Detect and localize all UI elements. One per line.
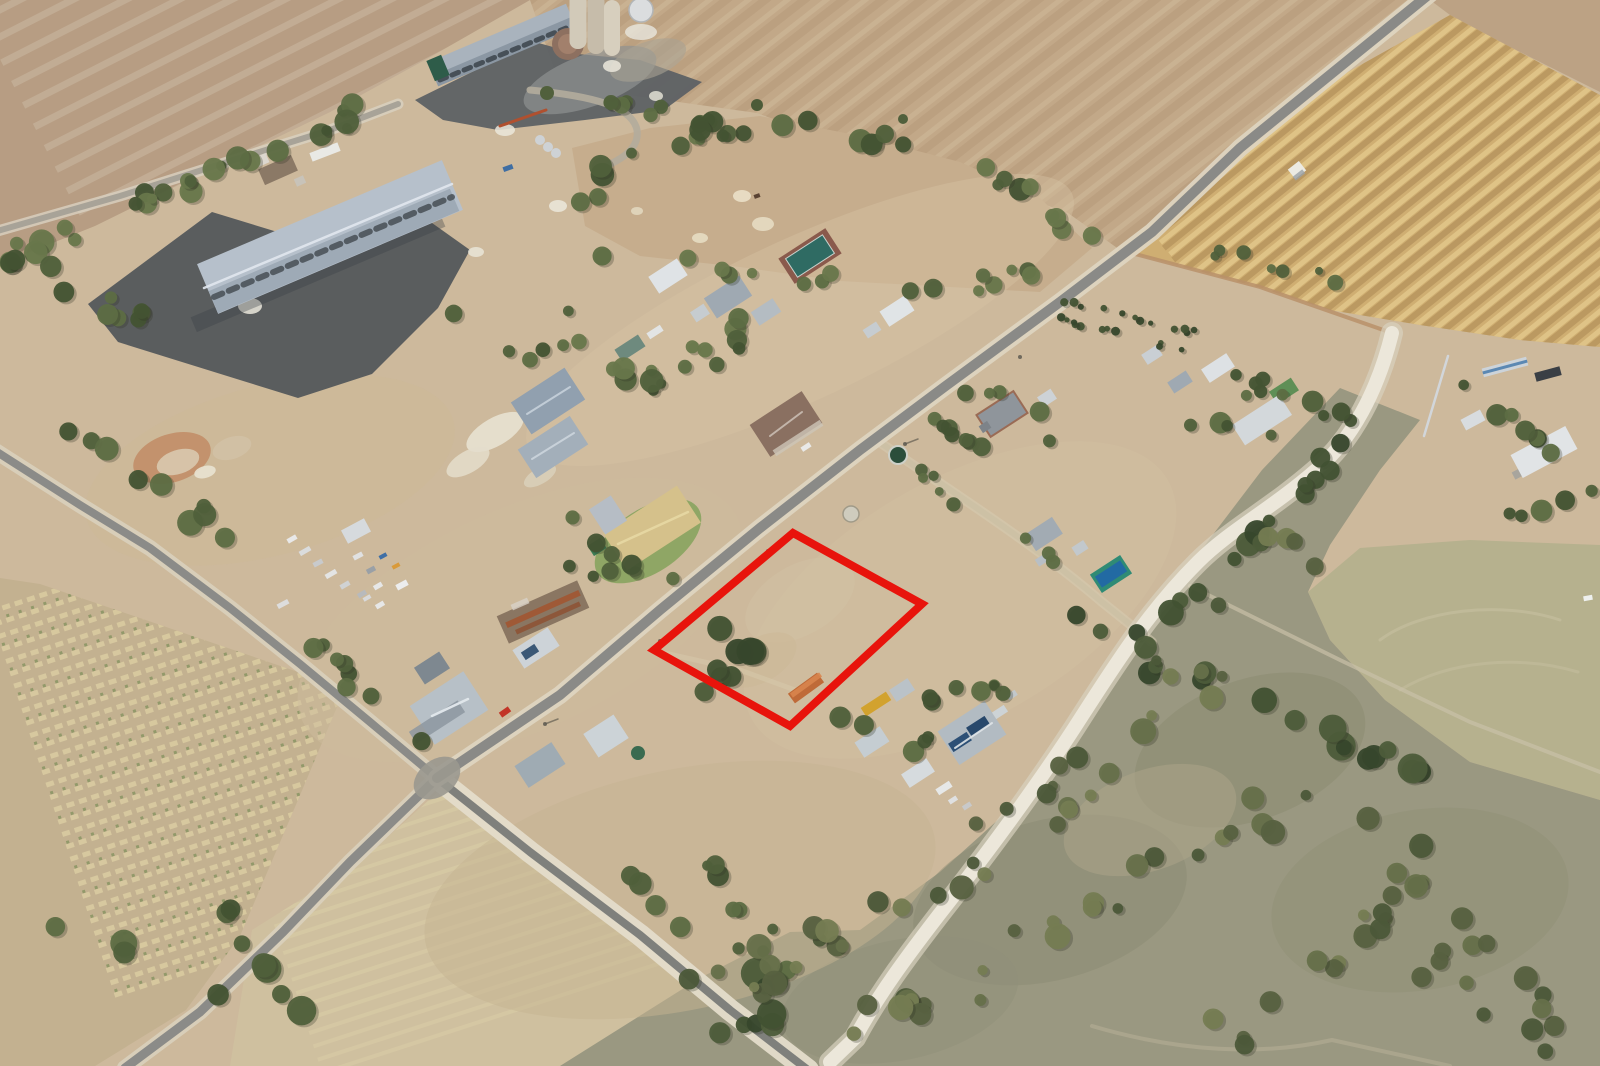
tree	[1179, 347, 1185, 353]
tree	[303, 638, 323, 658]
tree	[613, 357, 635, 379]
tree	[1302, 391, 1324, 413]
tree	[40, 256, 61, 277]
tree	[1476, 1007, 1490, 1021]
tree	[1112, 903, 1123, 914]
concrete-silo	[570, 0, 587, 49]
tree	[1227, 552, 1241, 566]
tree	[996, 171, 1012, 187]
tree	[1267, 264, 1276, 273]
tree	[1008, 924, 1021, 937]
tree	[1301, 790, 1312, 801]
tree	[1223, 825, 1238, 840]
concrete-silo	[604, 0, 620, 56]
tree	[697, 342, 712, 357]
tree	[1409, 834, 1433, 858]
tree	[725, 902, 741, 918]
tree	[1060, 800, 1078, 818]
aerial-photo-stage	[0, 0, 1600, 1066]
tree	[1064, 317, 1069, 322]
tree	[714, 262, 729, 277]
tree	[643, 108, 657, 122]
tree	[105, 291, 117, 303]
tree	[1383, 886, 1402, 905]
tree	[113, 941, 135, 963]
tree	[1037, 784, 1057, 804]
tree	[709, 1022, 730, 1043]
tree	[412, 732, 430, 750]
tree	[1586, 485, 1598, 497]
tree	[185, 175, 197, 187]
tree	[798, 111, 818, 131]
water-tower-tank	[889, 446, 907, 464]
tree	[1020, 533, 1031, 544]
tree	[1254, 385, 1267, 398]
tree	[971, 681, 991, 701]
tree	[1260, 991, 1281, 1012]
tree	[1046, 555, 1060, 569]
tree	[969, 816, 983, 830]
tree	[876, 125, 894, 143]
tree	[1214, 245, 1226, 257]
tree	[679, 250, 696, 267]
tree	[267, 140, 289, 162]
tree	[571, 192, 590, 211]
tree	[671, 137, 689, 155]
silo-ground-white	[625, 24, 657, 40]
tree	[1531, 500, 1553, 522]
tree	[995, 686, 1010, 701]
tree	[1430, 952, 1448, 970]
lone-tree	[751, 99, 763, 111]
tree	[1000, 802, 1014, 816]
tree	[1104, 326, 1110, 332]
tree	[957, 385, 974, 402]
tree	[733, 342, 746, 355]
tree	[95, 437, 119, 461]
tree	[1356, 807, 1379, 830]
tree	[1370, 919, 1391, 940]
sand-patch	[752, 217, 774, 231]
tree	[666, 572, 679, 585]
tree	[503, 345, 515, 357]
tree	[1537, 1043, 1553, 1059]
tree	[1327, 275, 1343, 291]
tree	[203, 158, 226, 181]
tree	[946, 497, 960, 511]
tree	[1130, 718, 1156, 744]
tree	[1379, 741, 1397, 759]
tree	[854, 715, 874, 735]
tree	[1505, 408, 1519, 422]
tree	[1358, 909, 1369, 920]
tree	[1100, 305, 1107, 312]
tree	[707, 659, 727, 679]
tree	[601, 562, 618, 579]
tree	[1331, 434, 1350, 453]
tree	[221, 899, 241, 919]
tree	[150, 473, 173, 496]
sand-patch	[631, 207, 643, 215]
tree	[1043, 434, 1056, 447]
limestone-patch	[649, 91, 663, 101]
tree	[1230, 369, 1242, 381]
tree	[1515, 509, 1528, 522]
sand-patch	[692, 233, 708, 243]
tree	[1006, 265, 1017, 276]
tree	[334, 109, 359, 134]
tree	[888, 995, 913, 1020]
tree	[1258, 527, 1277, 546]
tree	[1045, 923, 1071, 949]
tree	[1263, 515, 1275, 527]
tree	[234, 935, 251, 952]
power-pole	[903, 442, 907, 446]
tree	[1126, 854, 1149, 877]
tree	[790, 961, 803, 974]
tree	[557, 339, 569, 351]
aerial-photo	[0, 0, 1600, 1066]
tree	[629, 872, 652, 895]
concrete-silo	[588, 0, 605, 54]
green-tank	[631, 746, 645, 760]
tree	[893, 898, 911, 916]
tree	[1235, 1035, 1255, 1055]
tree	[640, 369, 664, 393]
tree	[193, 503, 216, 526]
tree	[732, 942, 744, 954]
tree	[1266, 430, 1277, 441]
limestone-patch	[603, 60, 621, 72]
round-tank	[843, 506, 859, 522]
tree	[337, 678, 355, 696]
tree	[967, 857, 980, 870]
tree	[1458, 380, 1469, 391]
tree	[829, 706, 850, 727]
tree	[272, 985, 290, 1003]
tree	[1083, 227, 1101, 245]
tree	[1515, 420, 1535, 440]
tree	[944, 427, 959, 442]
tree	[857, 995, 877, 1015]
tree	[1119, 310, 1125, 316]
tree	[1093, 624, 1108, 639]
tree	[603, 95, 618, 110]
tree	[1241, 390, 1252, 401]
tree	[728, 308, 748, 328]
tree	[1047, 208, 1067, 228]
tree	[918, 473, 928, 483]
tree	[252, 953, 276, 977]
tree	[1276, 264, 1290, 278]
tree	[645, 895, 665, 915]
tree	[976, 268, 990, 282]
tree	[1132, 315, 1138, 321]
lone-tree	[540, 86, 554, 100]
tree	[924, 279, 943, 298]
tree	[1236, 245, 1251, 260]
tree	[1285, 710, 1305, 730]
tree	[678, 360, 692, 374]
power-pole	[543, 722, 547, 726]
tree	[1532, 999, 1551, 1018]
tree	[749, 982, 759, 992]
tree	[59, 422, 77, 440]
tree	[847, 1026, 862, 1041]
tree	[1021, 178, 1038, 195]
tree	[767, 924, 778, 935]
tree	[1504, 507, 1516, 519]
tree	[129, 197, 143, 211]
tree	[762, 971, 787, 996]
tree	[1191, 327, 1198, 334]
tree	[1151, 655, 1161, 665]
tree	[917, 734, 931, 748]
tree	[1521, 1018, 1543, 1040]
tree	[930, 887, 947, 904]
tree	[147, 194, 157, 204]
mini-silo	[543, 142, 553, 152]
tree	[1252, 688, 1277, 713]
tree	[604, 546, 620, 562]
tree	[1217, 671, 1228, 682]
mini-silo	[535, 135, 545, 145]
tree	[626, 148, 637, 159]
tree	[1211, 597, 1227, 613]
tree	[1192, 848, 1205, 861]
tree	[215, 528, 235, 548]
tree	[670, 917, 691, 938]
tree	[797, 277, 811, 291]
tree	[536, 342, 551, 357]
tree	[1315, 267, 1323, 275]
steel-silo	[629, 0, 653, 22]
tree	[977, 965, 987, 975]
tree	[747, 268, 757, 278]
tree	[1158, 600, 1184, 626]
tree	[1404, 874, 1428, 898]
tree	[1411, 967, 1431, 987]
tree	[1286, 533, 1303, 550]
tree	[1057, 313, 1065, 321]
tree	[1307, 950, 1328, 971]
tree	[1050, 757, 1068, 775]
tree	[1162, 668, 1178, 684]
tree	[771, 114, 793, 136]
tree	[207, 984, 229, 1006]
tree	[1261, 820, 1285, 844]
tree	[1067, 606, 1086, 625]
tree	[46, 917, 66, 937]
tree	[1555, 490, 1575, 510]
tree	[565, 510, 579, 524]
tree	[822, 265, 839, 282]
tree	[679, 969, 700, 990]
tree	[895, 136, 911, 152]
tree	[1181, 325, 1190, 334]
tree	[1085, 790, 1097, 802]
power-pole	[1018, 355, 1022, 359]
tree	[1451, 907, 1473, 929]
tree	[815, 919, 839, 943]
limestone-patch	[549, 200, 567, 212]
tree	[129, 470, 148, 489]
tree	[1255, 372, 1270, 387]
tree	[1188, 583, 1207, 602]
mini-silo	[551, 148, 561, 158]
tree	[1156, 343, 1163, 350]
tree	[571, 334, 587, 350]
tree	[1171, 326, 1178, 333]
tree	[707, 616, 732, 641]
tree	[57, 220, 73, 236]
tree	[737, 637, 765, 665]
tree	[977, 158, 996, 177]
tree	[1277, 389, 1289, 401]
tree	[97, 304, 118, 325]
tree	[1298, 477, 1314, 493]
tree	[1514, 966, 1538, 990]
tree	[1148, 321, 1153, 326]
tree	[984, 388, 995, 399]
tree	[53, 282, 74, 303]
tree	[593, 246, 612, 265]
tree	[711, 964, 726, 979]
tree	[1332, 403, 1351, 422]
tree	[226, 146, 249, 169]
tree	[717, 129, 729, 141]
tree	[563, 560, 576, 573]
tree	[1099, 763, 1120, 784]
tree	[949, 680, 964, 695]
tree	[1134, 636, 1157, 659]
tree	[1398, 753, 1428, 783]
tree	[686, 340, 699, 353]
tree	[1459, 976, 1474, 991]
tree	[1478, 935, 1496, 953]
tree	[1194, 664, 1209, 679]
tree	[5, 250, 25, 270]
tree	[706, 855, 725, 874]
sand-patch	[733, 190, 751, 202]
tree	[589, 155, 612, 178]
limestone-patch	[468, 247, 484, 257]
tree	[622, 555, 642, 575]
tree	[10, 237, 23, 250]
tree	[1199, 685, 1223, 709]
tree	[1060, 298, 1068, 306]
tree	[1083, 898, 1102, 917]
tree	[1542, 444, 1560, 462]
tree	[1306, 557, 1324, 575]
tree	[959, 433, 973, 447]
tree	[709, 357, 724, 372]
tree	[902, 282, 919, 299]
tree	[1241, 786, 1264, 809]
tree	[950, 875, 974, 899]
tree	[1070, 298, 1079, 307]
tree	[563, 306, 574, 317]
tree	[1221, 420, 1233, 432]
tree	[522, 352, 538, 368]
tree	[1387, 863, 1408, 884]
tree	[1318, 410, 1329, 421]
tree	[973, 285, 984, 296]
tree	[1203, 1008, 1224, 1029]
tree	[321, 125, 332, 136]
tree	[1049, 816, 1066, 833]
tree	[1184, 419, 1197, 432]
tree	[689, 119, 711, 141]
tree	[134, 303, 150, 319]
tree	[587, 534, 606, 553]
tree	[1071, 319, 1077, 325]
tree	[935, 487, 944, 496]
tree	[1022, 266, 1040, 284]
tree	[445, 305, 463, 323]
tree	[588, 571, 599, 582]
tree	[1030, 402, 1050, 422]
tree	[1319, 715, 1347, 743]
tree	[363, 688, 380, 705]
tree	[974, 994, 986, 1006]
tree	[867, 891, 888, 912]
tree	[1066, 747, 1088, 769]
lone-tree	[898, 114, 908, 124]
tree	[1320, 461, 1340, 481]
tree	[922, 689, 938, 705]
tree	[330, 652, 344, 666]
